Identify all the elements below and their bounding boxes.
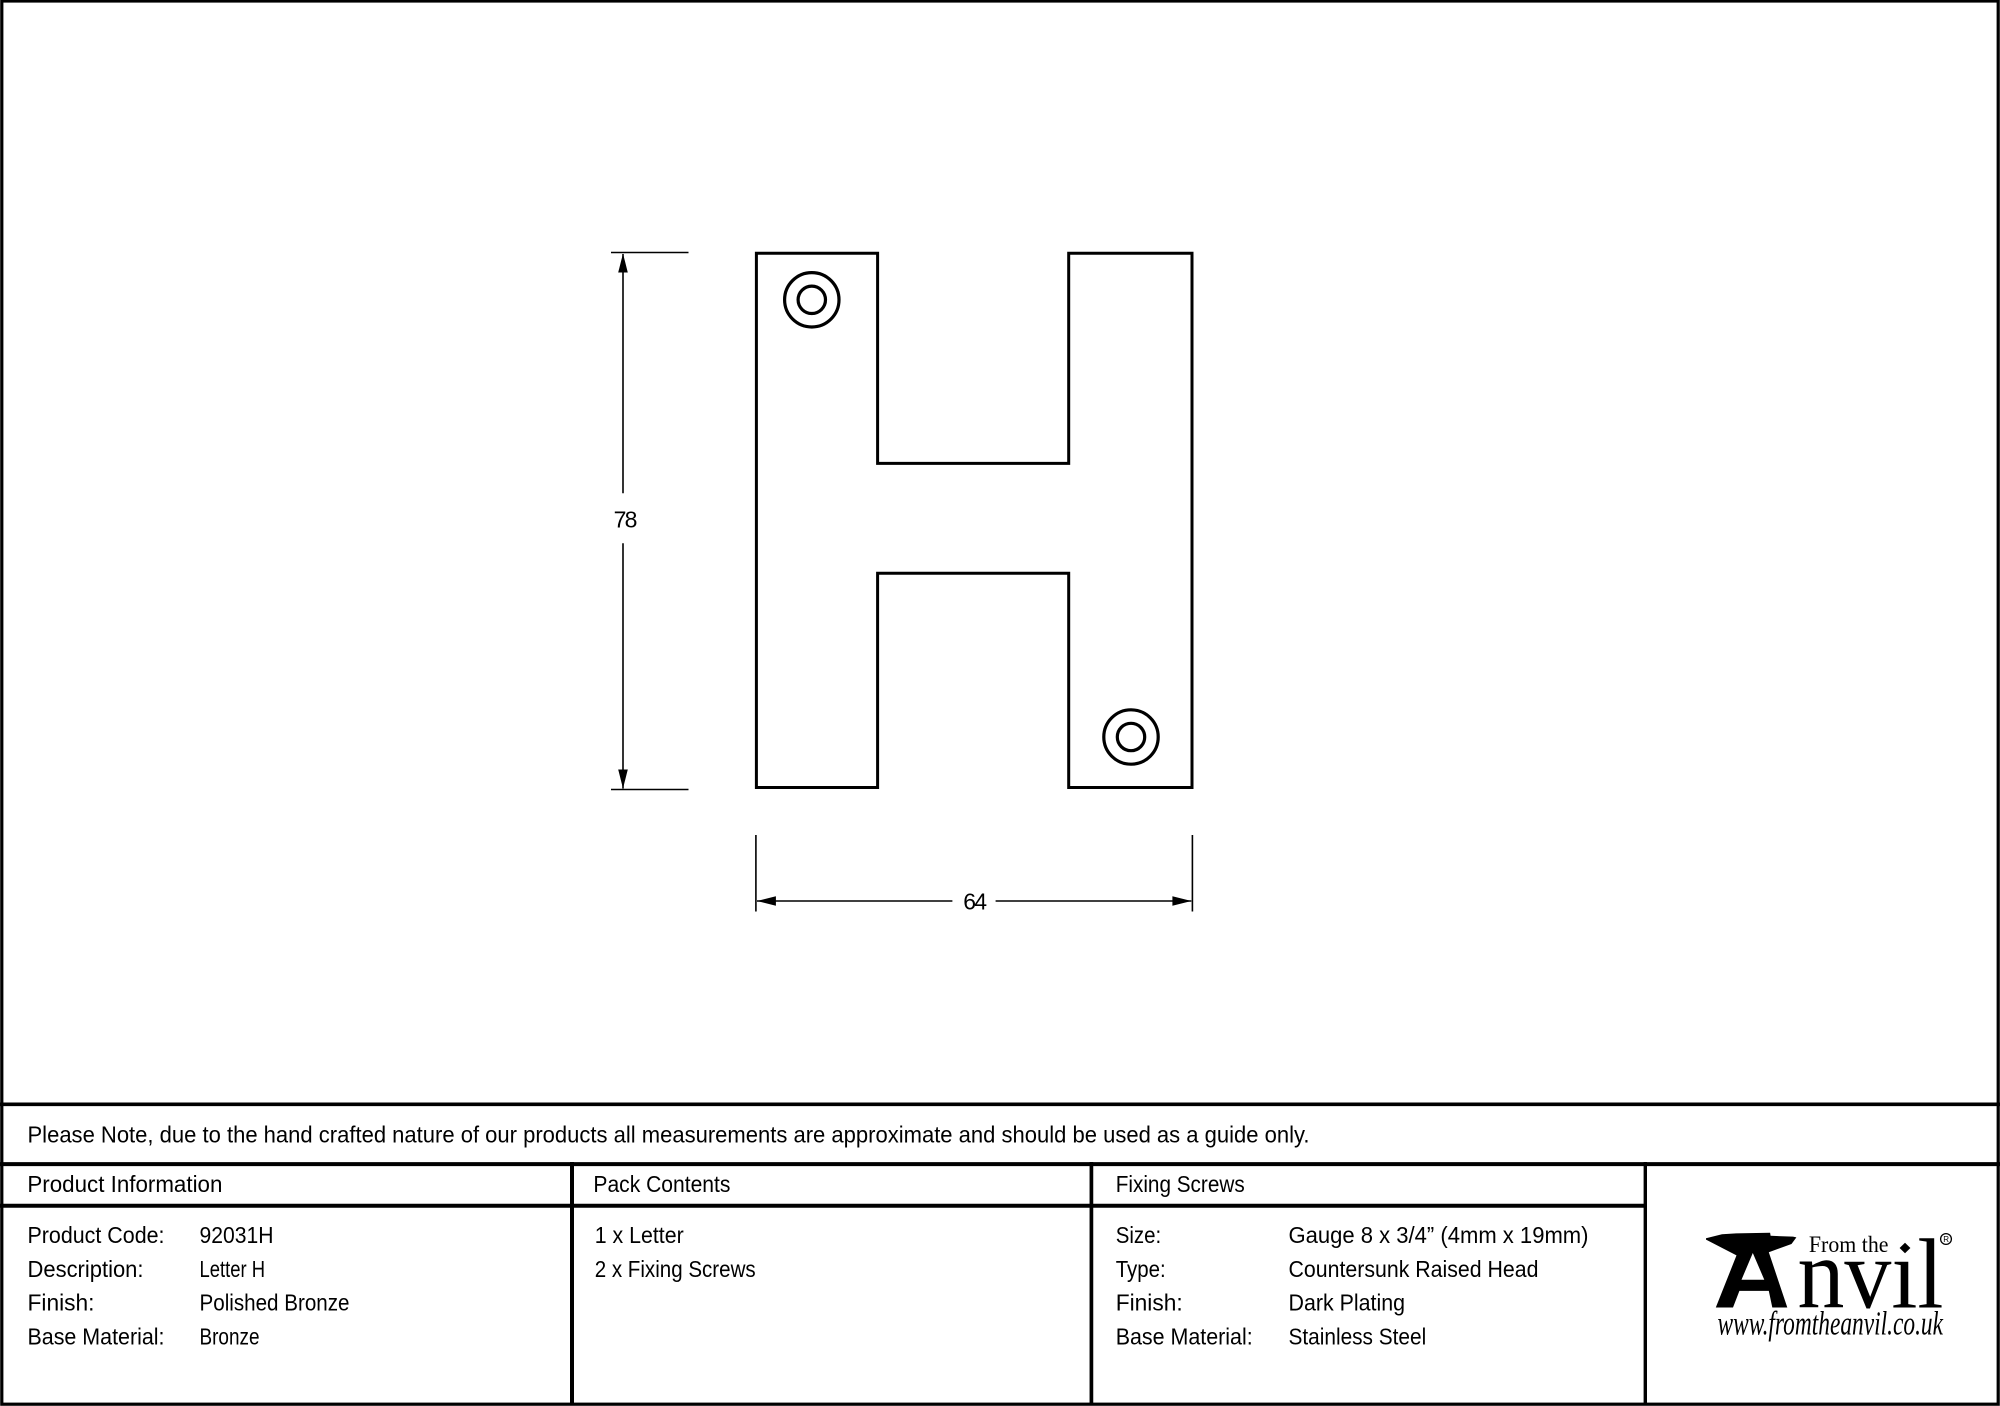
svg-text:Product Code:: Product Code: [28, 1222, 165, 1248]
svg-text:Dark Plating: Dark Plating [1289, 1290, 1406, 1316]
svg-text:Stainless Steel: Stainless Steel [1289, 1324, 1427, 1350]
svg-text:2 x Fixing Screws: 2 x Fixing Screws [595, 1256, 756, 1282]
svg-text:Bronze: Bronze [200, 1324, 260, 1350]
svg-text:Size:: Size: [1116, 1222, 1162, 1248]
svg-text:Please Note, due to the hand c: Please Note, due to the hand crafted nat… [28, 1122, 1310, 1148]
svg-text:Base Material:: Base Material: [28, 1324, 165, 1350]
svg-text:92031H: 92031H [200, 1222, 274, 1248]
svg-text:Gauge 8 x 3/4” (4mm x 19mm): Gauge 8 x 3/4” (4mm x 19mm) [1289, 1222, 1589, 1248]
svg-text:Pack Contents: Pack Contents [593, 1171, 730, 1197]
svg-text:Base Material:: Base Material: [1116, 1324, 1253, 1350]
svg-text:64: 64 [963, 889, 987, 915]
svg-text:Letter H: Letter H [200, 1256, 266, 1282]
svg-text:Polished Bronze: Polished Bronze [200, 1290, 350, 1316]
svg-text:Countersunk Raised Head: Countersunk Raised Head [1289, 1256, 1539, 1282]
svg-text:Finish:: Finish: [28, 1290, 95, 1316]
svg-text:Fixing Screws: Fixing Screws [1116, 1171, 1245, 1197]
svg-text:78: 78 [614, 506, 638, 532]
svg-text:Finish:: Finish: [1116, 1290, 1183, 1316]
svg-text:Description:: Description: [28, 1256, 144, 1282]
svg-text:Type:: Type: [1116, 1256, 1166, 1282]
svg-text:www.fromtheanvil.co.uk: www.fromtheanvil.co.uk [1718, 1306, 1944, 1343]
svg-text:R: R [1943, 1235, 1949, 1244]
svg-text:1 x Letter: 1 x Letter [595, 1222, 684, 1248]
svg-text:Product Information: Product Information [27, 1171, 222, 1197]
